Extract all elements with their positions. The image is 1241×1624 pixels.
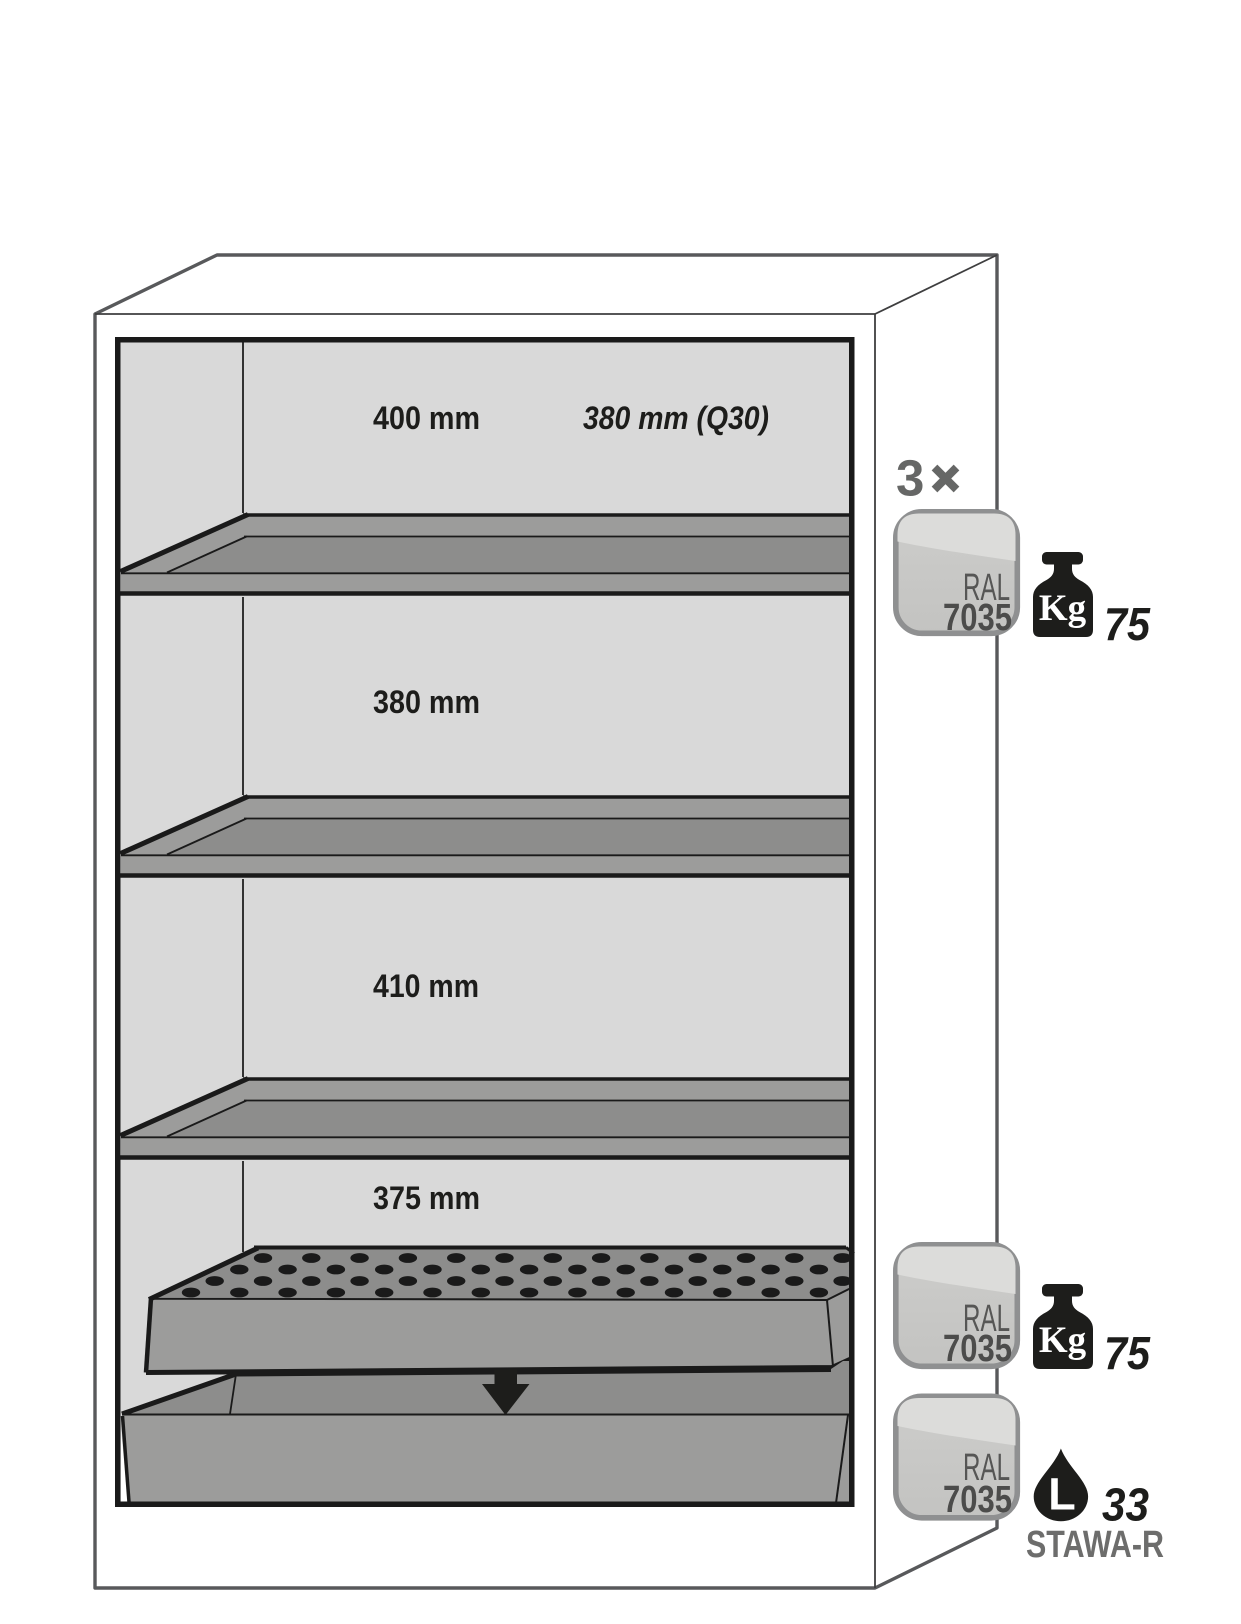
svg-text:7035: 7035 (943, 1479, 1012, 1521)
svg-text:7035: 7035 (943, 597, 1012, 639)
svg-text:380 mm: 380 mm (373, 684, 480, 720)
svg-text:410 mm: 410 mm (373, 968, 479, 1004)
svg-text:375 mm: 375 mm (373, 1180, 480, 1216)
svg-text:7035: 7035 (943, 1328, 1012, 1370)
svg-text:Kg: Kg (1039, 1320, 1087, 1361)
svg-text:75: 75 (1104, 1327, 1151, 1379)
svg-text:380 mm (Q30): 380 mm (Q30) (583, 400, 769, 436)
svg-text:3: 3 (896, 450, 924, 507)
svg-text:75: 75 (1104, 598, 1151, 650)
svg-text:STAWA-R: STAWA-R (1026, 1523, 1164, 1565)
svg-text:L: L (1048, 1469, 1076, 1520)
svg-text:400 mm: 400 mm (373, 400, 480, 436)
svg-text:Kg: Kg (1039, 588, 1087, 629)
